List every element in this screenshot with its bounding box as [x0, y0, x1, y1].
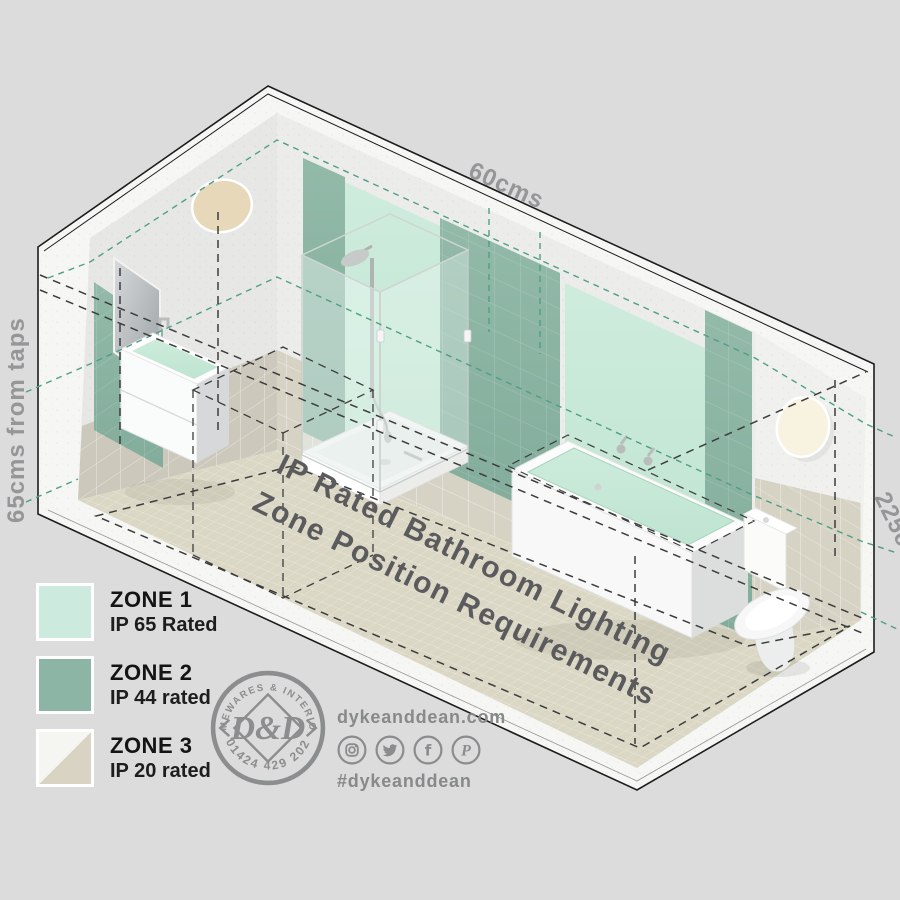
svg-text:P: P [460, 742, 471, 759]
hashtag-text: #dykeanddean [337, 771, 506, 792]
bathroom-lighting-diagram: 60cms 65cms from taps 225cms IP Rated Ba… [0, 0, 900, 900]
shower-glass-left [302, 255, 380, 492]
svg-text:f: f [425, 742, 432, 760]
brand-links: dykeanddean.com f P #dykeanddean [337, 707, 506, 792]
twitter-icon [375, 735, 405, 765]
zone3-swatch [36, 729, 94, 787]
brand-badge: HOMEWARES & INTERIORS 01424 429 202 D&D [209, 669, 327, 787]
zone3-label: ZONE 3 [110, 732, 211, 760]
badge-monogram-text: D&D [230, 710, 306, 747]
zone2-swatch [36, 656, 94, 714]
zone1-rating: IP 65 Rated [110, 613, 217, 638]
social-icons: f P [337, 735, 506, 765]
zone3-rating: IP 20 rated [110, 759, 211, 784]
facebook-icon: f [413, 735, 443, 765]
zone2-rating: IP 44 rated [110, 686, 211, 711]
pinterest-icon: P [451, 735, 481, 765]
zone1-swatch [36, 583, 94, 641]
zone1-label: ZONE 1 [110, 586, 217, 614]
instagram-icon [337, 735, 367, 765]
legend-item-zone1: ZONE 1 IP 65 Rated [36, 584, 346, 640]
website-text: dykeanddean.com [337, 707, 506, 728]
zone2-label: ZONE 2 [110, 659, 211, 687]
dimension-taps-label: 65cms from taps [3, 317, 30, 523]
